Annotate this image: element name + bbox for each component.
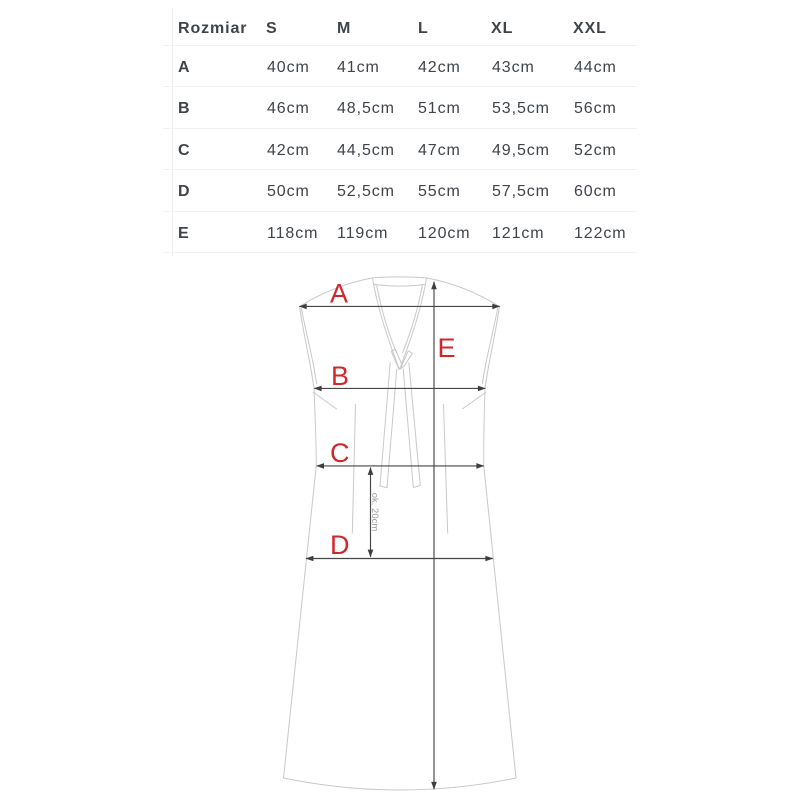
svg-text:ok. 20cm: ok. 20cm: [369, 493, 380, 532]
svg-text:A: A: [330, 279, 348, 309]
svg-text:B: B: [331, 361, 349, 391]
svg-text:E: E: [438, 333, 456, 363]
svg-text:C: C: [330, 438, 350, 468]
svg-text:D: D: [330, 530, 350, 560]
